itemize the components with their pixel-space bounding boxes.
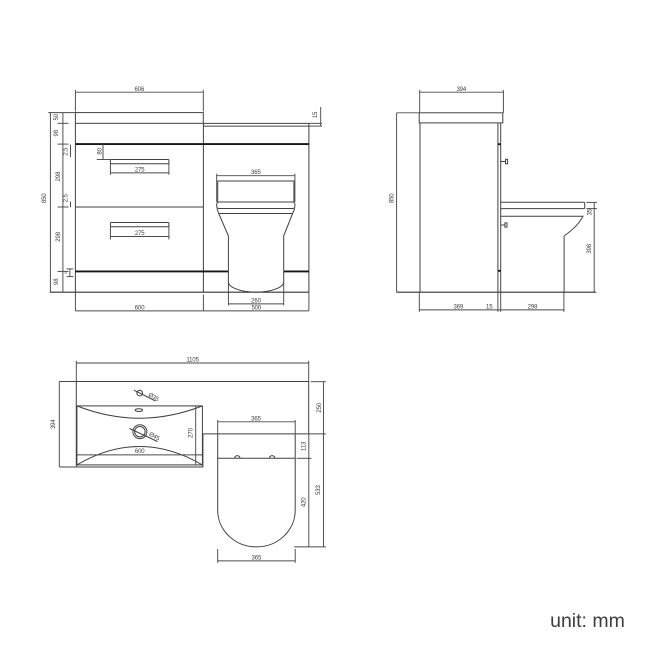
svg-text:298: 298 [56, 231, 62, 241]
svg-text:850: 850 [42, 193, 48, 203]
svg-text:298: 298 [56, 171, 62, 181]
svg-text:600: 600 [135, 306, 145, 312]
svg-text:298: 298 [528, 305, 538, 311]
svg-text:275: 275 [135, 168, 145, 174]
svg-text:600: 600 [135, 449, 145, 455]
svg-text:98: 98 [54, 129, 60, 136]
svg-text:3: 3 [64, 272, 68, 274]
svg-text:420: 420 [301, 497, 307, 507]
svg-text:15: 15 [486, 305, 493, 311]
svg-text:365: 365 [251, 170, 261, 176]
svg-text:113: 113 [301, 441, 307, 451]
svg-text:275: 275 [135, 231, 145, 237]
svg-text:533: 533 [316, 484, 322, 494]
svg-text:394: 394 [51, 419, 57, 429]
svg-text:270: 270 [189, 427, 195, 437]
svg-text:1105: 1105 [186, 358, 199, 364]
svg-text:260: 260 [251, 299, 261, 305]
svg-text:98: 98 [54, 278, 60, 285]
svg-text:15: 15 [313, 111, 319, 118]
svg-text:2.5: 2.5 [64, 147, 70, 156]
svg-text:50: 50 [54, 113, 60, 120]
svg-text:365: 365 [251, 416, 261, 422]
svg-text:394: 394 [456, 87, 466, 93]
svg-text:35: 35 [588, 208, 594, 215]
svg-text:unit: mm: unit: mm [550, 610, 625, 632]
svg-text:369: 369 [454, 305, 464, 311]
svg-text:606: 606 [135, 87, 145, 93]
svg-text:500: 500 [251, 306, 261, 312]
svg-text:398: 398 [587, 243, 593, 253]
svg-text:365: 365 [252, 556, 262, 562]
svg-text:250: 250 [317, 402, 323, 412]
svg-text:850: 850 [389, 193, 395, 203]
svg-text:80: 80 [97, 147, 103, 154]
svg-text:2.5: 2.5 [64, 194, 70, 203]
